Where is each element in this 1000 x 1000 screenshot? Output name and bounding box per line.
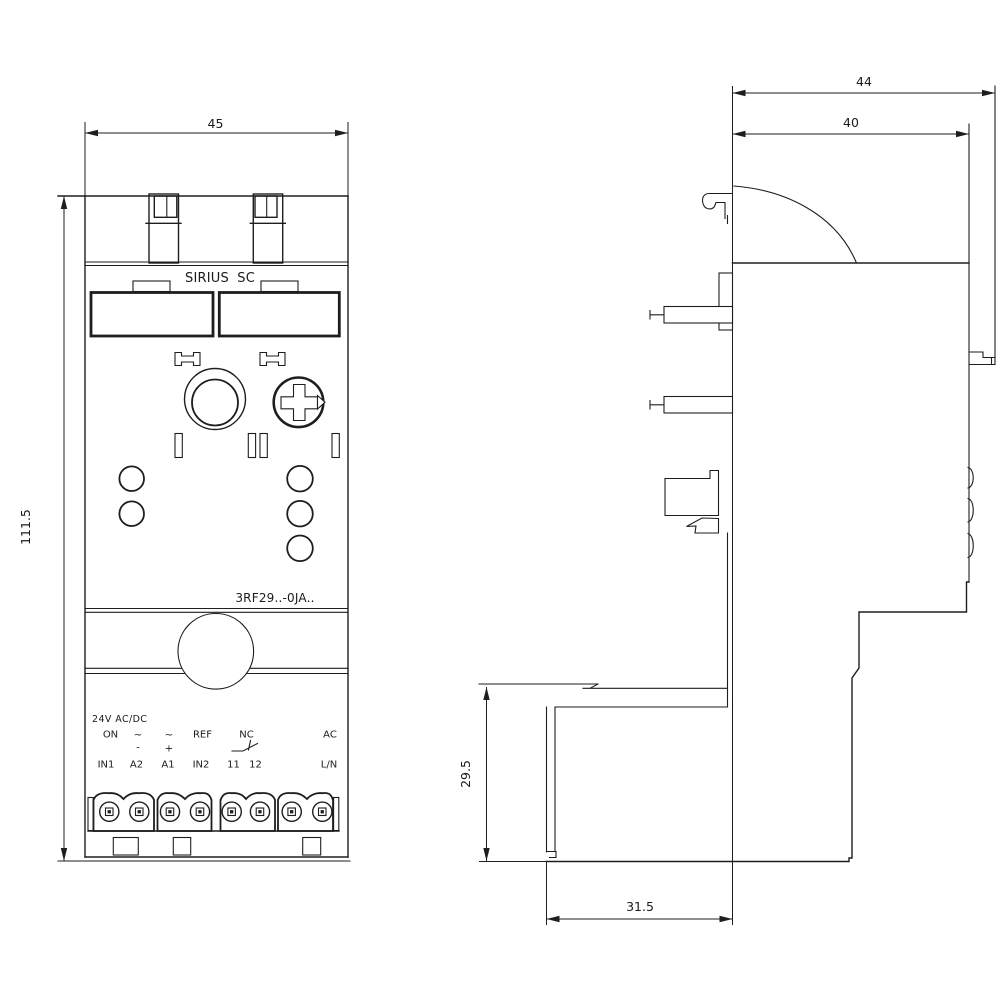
terminal-block[interactable] [94,793,155,831]
terminal-screw[interactable] [313,802,332,821]
connector-housing-lower [665,471,719,516]
terminal-screw[interactable] [282,802,301,821]
dimension-depth-body-value: 40 [843,115,859,130]
technical-drawing-page: SIRIUS SC 3RF29..- [0,0,1000,1000]
terminal-label-a1: A1 [161,760,174,771]
led-indicator [287,536,313,562]
mounting-tab-left [146,194,181,263]
side-bottom-outline [547,582,970,862]
terminal-sign-minus-a2: - [136,743,140,754]
terminal-sign-tilde-a1: ~ [165,730,173,741]
terminal-pin-upper [650,307,733,324]
led-indicator [287,466,313,492]
cross-slot-icon [281,385,318,421]
potentiometer[interactable] [274,378,325,428]
dimension-depth-40: 40 [733,115,970,137]
front-view: SIRIUS SC 3RF29..- [18,116,350,861]
terminal-block[interactable] [278,793,333,831]
feed-through-opening [178,614,254,690]
terminal-screw[interactable] [160,802,179,821]
brand-label: SIRIUS SC [185,271,255,286]
terminal-screw[interactable] [222,802,241,821]
dimensional-drawing: SIRIUS SC 3RF29..- [0,0,1000,1000]
terminal-block-row [88,793,339,855]
base-cutout [303,838,321,856]
terminal-screw[interactable] [250,802,269,821]
shelf-top-edge [479,684,728,688]
terminal-screw[interactable] [190,802,209,821]
terminal-label-a2: A2 [130,760,143,771]
terminal-label-12: 12 [249,760,262,771]
scale-tick [175,434,182,458]
led-indicator [119,501,144,526]
dimension-terminal-depth-value: 31.5 [626,899,654,914]
dimension-depth-total-value: 44 [856,74,872,89]
terminal-label-11: 11 [227,760,240,771]
terminal-pin-lower [650,397,733,414]
terminal-markings: 24V AC/DC ON ~ - ~ + REF NC AC IN1 A2 A1… [92,714,337,771]
terminal-label-in2: IN2 [193,760,210,771]
terminal-side-tab-right [334,798,339,831]
terminal-label-ln: L/N [321,760,337,771]
terminal-side-tab-left [88,798,93,831]
dimension-depth-44: 44 [733,74,996,96]
label-window-tab-right [261,281,298,292]
terminal-block[interactable] [221,793,276,831]
dimension-terminal-depth-31-5: 31.5 [547,862,733,926]
terminal-front-face [547,707,556,852]
dimension-terminal-height-29-5: 29.5 [458,687,547,862]
nc-contact-symbol-icon [232,741,258,752]
scale-tick [260,434,267,458]
terminal-screw[interactable] [100,802,119,821]
dimension-height-111-5: 111.5 [18,196,67,861]
dimension-width-45: 45 [85,116,348,196]
terminal-label-ref: REF [193,730,212,741]
led-indicator [119,466,144,491]
separator-upper [85,609,348,613]
label-window-left [91,293,213,337]
clip-swing-arc [734,186,857,263]
device-type-label: 3RF29..-0JA.. [235,591,314,605]
label-window-tab-left [133,281,170,292]
dimension-height-value: 111.5 [18,509,33,545]
dimension-terminal-height-value: 29.5 [458,760,473,788]
scale-tick [332,434,339,458]
base-cutout [173,838,190,856]
terminal-label-ac: AC [323,730,337,741]
terminal-label-nc: NC [239,730,253,741]
side-view: 44 40 29.5 31.5 [458,74,995,925]
terminal-sign-tilde-a2: ~ [134,730,142,741]
scale-tick [248,434,255,458]
selector-knob[interactable] [185,369,246,430]
base-cutout [113,838,138,856]
terminal-screw[interactable] [130,802,149,821]
dimension-width-value: 45 [208,116,224,131]
terminal-screws [100,802,332,821]
terminal-front-hook [547,852,557,858]
clip-symbol-right [260,353,285,366]
clip-symbol-left [175,353,200,366]
din-rail-slider [969,352,995,365]
terminal-label-in1: IN1 [98,760,115,771]
label-window-right [219,293,339,337]
top-section-divider [85,262,348,266]
led-indicator [287,501,313,527]
mounting-latch [687,518,719,533]
terminal-label-supply: 24V AC/DC [92,714,147,725]
terminal-label-on: ON [103,730,118,741]
din-clip-hook [703,194,733,224]
mounting-tab-right [250,194,285,263]
terminal-sign-plus-a1: + [165,744,173,755]
